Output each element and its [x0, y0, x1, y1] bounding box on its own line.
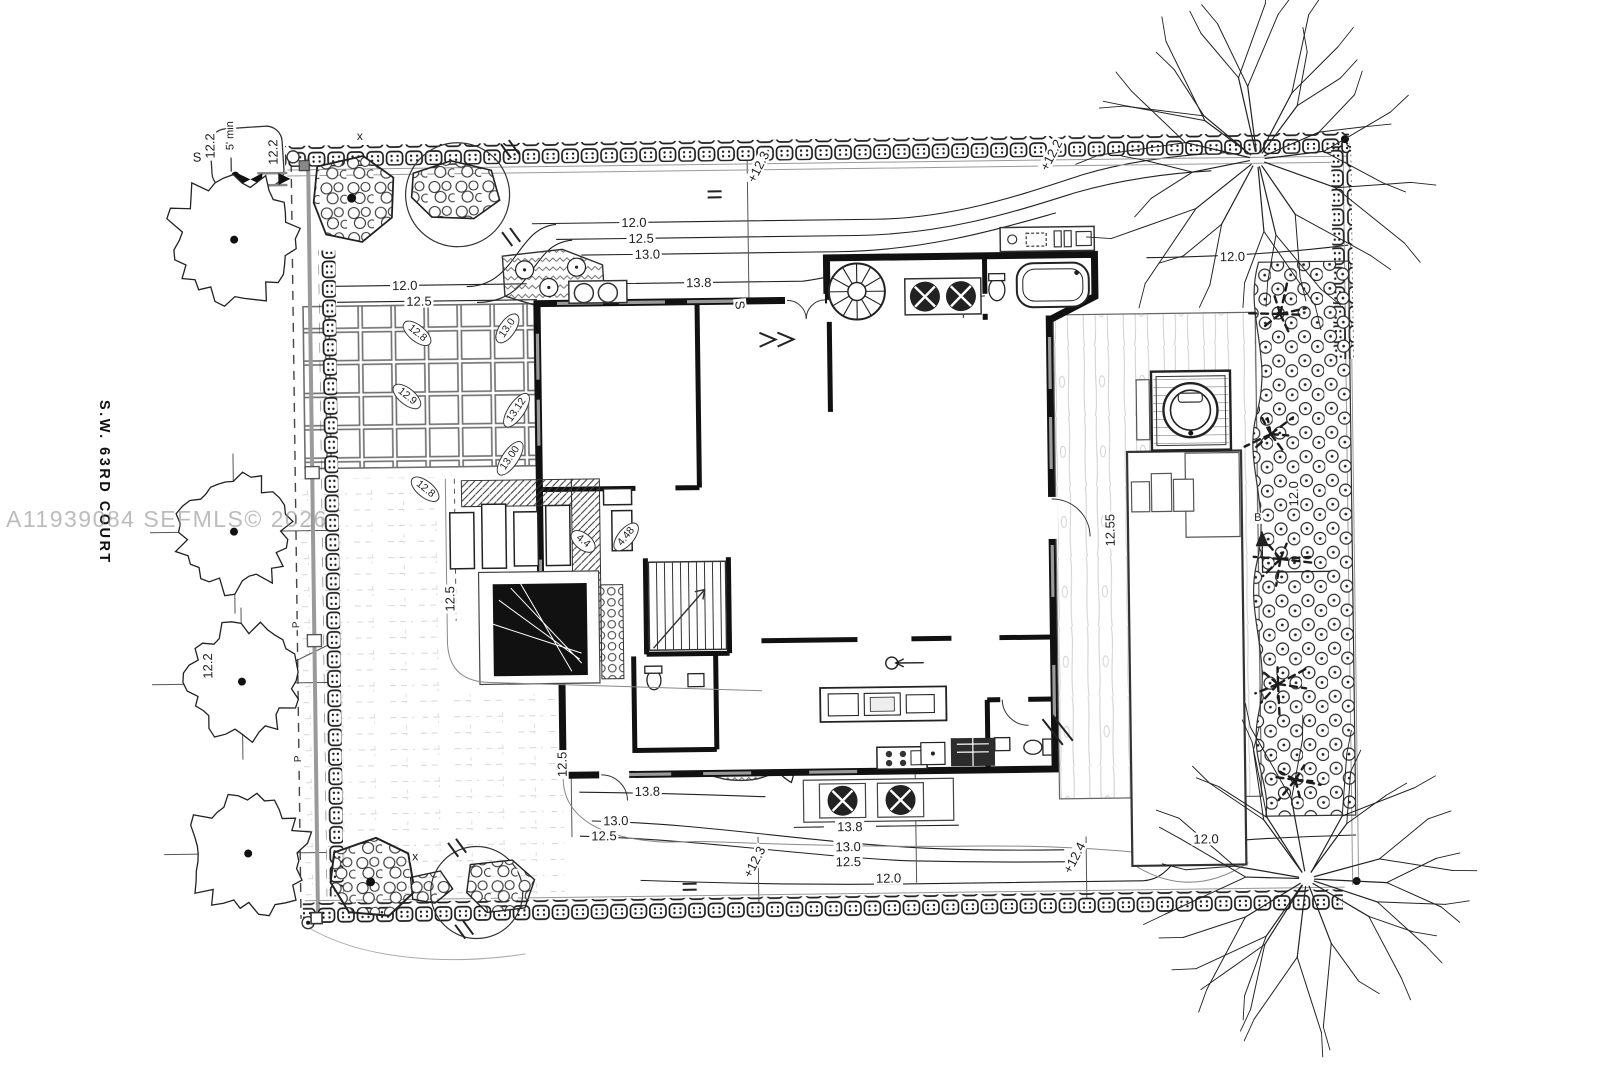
canopy-trees — [166, 174, 312, 917]
toilet — [989, 279, 1005, 301]
contour-12-0-bottom: 12.0 — [874, 871, 903, 884]
contour-12-5-topleft: 12.5 — [404, 295, 433, 308]
mark-x-b: x — [410, 850, 420, 862]
contour-13-0-top: 13.0 — [633, 248, 662, 261]
contour-12-0-top: 12.0 — [619, 216, 648, 229]
dim-12-5-courtyard: 12.5 — [443, 584, 456, 613]
note-5ft-min: 5' min — [225, 119, 236, 152]
street-name-label: S.W. 63RD COURT — [96, 400, 112, 565]
mark-s-topleft: S — [191, 151, 204, 164]
mark-x-a: x — [355, 130, 365, 142]
contour-13-0-bottom: 13.0 — [833, 840, 862, 853]
section-b-label: B — [1252, 513, 1263, 524]
spiral-staircase — [829, 263, 886, 320]
dense-planter — [493, 583, 588, 676]
site-plan-tilt-wrap: 12.012.512.012.513.013.8+12.3+12.212.012… — [0, 0, 1600, 1065]
contour-12-5-top: 12.5 — [626, 232, 655, 245]
contour-13-8-top: 13.8 — [684, 276, 713, 289]
dim-12-2-b: 12.2 — [266, 137, 279, 166]
contour-13-8-bottomleft: 13.8 — [633, 785, 662, 798]
dim-12-2-a: 12.2 — [203, 131, 216, 160]
dim-12-55-pool: 12.55 — [1103, 512, 1116, 549]
property-line-dashed — [291, 163, 301, 919]
dim-12-2-c: 12.2 — [201, 651, 214, 680]
site-plan-drawing — [0, 0, 1600, 1065]
contour-12-5-bottomleft: 12.5 — [589, 829, 618, 842]
site-plan-page: 12.012.512.012.513.013.8+12.3+12.212.012… — [0, 0, 1600, 1065]
contour-12-5-bottom: 12.5 — [834, 855, 863, 868]
dim-12-5-patio: 12.5 — [555, 750, 568, 779]
valve-icon — [278, 173, 290, 185]
contour-12-0-topleft: 12.0 — [390, 279, 419, 292]
mark-s-contour: S — [733, 298, 747, 312]
contour-13-0-bottomleft: 13.0 — [601, 814, 630, 827]
pad-13-8: 13.8 — [835, 820, 864, 833]
contour-12-0-topright: 12.0 — [1218, 250, 1247, 263]
equipment-room — [905, 278, 981, 315]
hedge-top — [285, 132, 1349, 167]
mark-p-a: P — [292, 619, 302, 630]
contour-12-0-bottomright: 12.0 — [1191, 832, 1220, 845]
ac-equipment-pad — [803, 778, 954, 822]
dim-12-0-right: 12.0 — [1287, 479, 1300, 508]
mark-p-b: P — [294, 753, 304, 764]
